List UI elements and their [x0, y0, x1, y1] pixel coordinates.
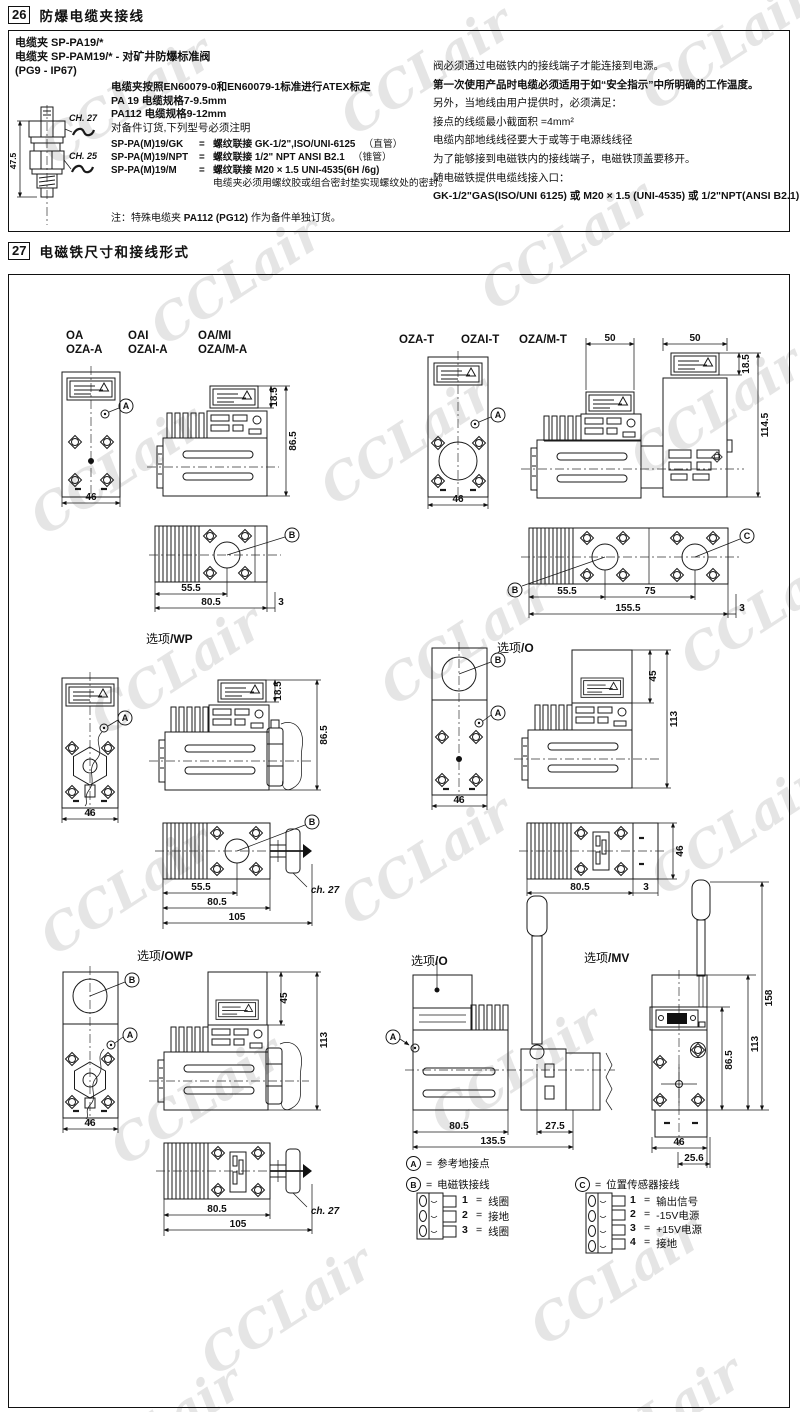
section-27-header: 27 电磁铁尺寸和接线形式	[8, 241, 189, 261]
dim-oa-plate-h: 18.5	[269, 387, 280, 407]
instr-line-6: 为了能够接到电磁铁内的接线端子，电磁铁顶盖要移开。	[433, 150, 799, 169]
coil-connector-icon	[416, 1192, 458, 1242]
instr-line-8: GK-1/2"GAS(ISO/UNI 6125) 或 M20 × 1.5 (UN…	[433, 187, 799, 206]
dim-o1-top: 45	[648, 670, 659, 682]
legend-c-item: 4=接地	[630, 1236, 677, 1251]
dim-ozat-b2: 75	[644, 586, 656, 597]
model-desc: 螺纹联接 GK-1/2",ISO/UNI-6125	[213, 138, 355, 151]
marker-b: B	[406, 1177, 421, 1192]
dim-o1-b3: 46	[675, 845, 686, 857]
dim-wp-plate-h: 18.5	[273, 681, 284, 701]
section-title: 电磁铁尺寸和接线形式	[39, 241, 189, 261]
instr-line-5: 电缆内部地线线径要大于或等于电源线线径	[433, 131, 799, 150]
model-paren: （直管）	[363, 138, 402, 151]
model-code: SP-PA(M)19/GK	[111, 138, 199, 151]
dim-mv-h2: 113	[750, 1035, 761, 1052]
clamp-line-1: 电缆夹 SP-PA19/*	[15, 36, 210, 50]
wrench-size-top: CH. 27	[69, 113, 98, 123]
o2-lever-side-view	[386, 896, 615, 1150]
dim-ozat-width: 46	[452, 494, 464, 505]
dim-o1-b1: 80.5	[570, 882, 590, 893]
model-desc: 螺纹联接 M20 × 1.5 UNI-4535(6H /6g)	[213, 164, 379, 177]
section-26-header: 26 防爆电缆夹接线	[8, 5, 144, 25]
pa19-line: PA 19 电缆规格7-9.5mm	[111, 95, 448, 109]
dim-wp-b3: 105	[229, 912, 246, 923]
seal-note: 电缆夹必须用螺纹胶或组合密封垫实现螺纹处的密封。	[213, 177, 448, 191]
dim-ozat-top2: 50	[689, 333, 701, 344]
dim-o1-height: 113	[669, 710, 680, 727]
wp-front-view	[62, 672, 132, 823]
marker-a: A	[127, 1030, 134, 1040]
wiring-instructions: 阀必须通过电磁铁内的接线端子才能连接到电源。 第一次使用产品时电缆必须适用于如“…	[433, 57, 799, 206]
clamp-line-3: (PG9 - IP67)	[15, 64, 210, 78]
marker-a: A	[390, 1032, 397, 1042]
dim-oa-height: 86.5	[288, 431, 299, 451]
marker-b: B	[289, 530, 296, 540]
dim-ozat-height: 114.5	[760, 412, 771, 437]
legend-b: B = 电磁铁接线	[406, 1177, 490, 1192]
gland-height-dim: 47.5	[8, 152, 18, 169]
dim-owp-wrench: ch. 27	[311, 1206, 340, 1217]
dim-wp-b1: 55.5	[191, 882, 211, 893]
dim-oa-width: 46	[85, 492, 97, 503]
instr-line-7: 随电磁铁提供电缆线接入口：	[433, 169, 799, 188]
dim-ozat-b1: 55.5	[557, 586, 577, 597]
legend-b-item: 3=线圈	[462, 1224, 509, 1239]
oa-front-view	[62, 366, 133, 507]
marker-b: B	[309, 817, 316, 827]
marker-a: A	[122, 713, 129, 723]
dim-owp-top: 45	[279, 992, 290, 1004]
cable-clamp-intro: 电缆夹 SP-PA19/* 电缆夹 SP-PAM19/* - 对矿井防爆标准阀 …	[15, 36, 210, 78]
dim-owp-b2: 105	[230, 1219, 247, 1230]
model-row: SP-PA(M)19/GK = 螺纹联接 GK-1/2",ISO/UNI-612…	[111, 138, 448, 151]
legend-c: C = 位置传感器接线	[575, 1177, 680, 1192]
dim-mv-h3: 158	[764, 989, 775, 1006]
dim-owp-height: 113	[319, 1031, 330, 1048]
instr-line-4: 接点的线缆最小截面积 =4mm²	[433, 113, 799, 132]
mv-front-view	[650, 880, 769, 1168]
sensor-connector-icon	[585, 1192, 627, 1256]
cable-gland-drawing: 47.5 CH. 27 CH. 25	[13, 103, 113, 229]
legend-c-item: 3=+15V电源	[630, 1222, 702, 1237]
wrench-icon	[72, 166, 93, 172]
dim-oa-b1: 55.5	[181, 583, 201, 594]
section-number: 26	[8, 6, 30, 24]
dim-wp-wrench: ch. 27	[311, 885, 340, 896]
order-note-line: 对备件订货,下列型号必须注明	[111, 122, 448, 136]
dim-o2-b1: 80.5	[449, 1121, 469, 1132]
legend-c-item: 2=-15V电源	[630, 1208, 699, 1223]
dim-mv-w1: 46	[673, 1137, 685, 1148]
dim-o1-width: 46	[453, 795, 465, 806]
legend-b-item: 1=线圈	[462, 1194, 509, 1209]
legend-b-title: 电磁铁接线	[437, 1177, 490, 1192]
legend-b-item: 2=接地	[462, 1209, 509, 1224]
ozat-side-view	[521, 338, 761, 498]
dim-mv-h1: 86.5	[724, 1050, 735, 1070]
dim-ozat-top1: 50	[604, 333, 616, 344]
spare-part-note: 注：特殊电缆夹 PA112 (PG12) 作为备件单独订货。	[111, 212, 448, 226]
model-row: SP-PA(M)19/M = 螺纹联接 M20 × 1.5 UNI-4535(6…	[111, 164, 448, 177]
dim-owp-width: 46	[84, 1118, 96, 1129]
ozat-front-view	[428, 351, 505, 509]
dim-o2-b3: 135.5	[480, 1136, 505, 1147]
dim-o1-b2: 3	[643, 882, 649, 893]
dim-wp-height: 86.5	[319, 725, 330, 745]
datasheet-page: CCLair CCLair CCLair CCLair CCLair CCLai…	[0, 0, 800, 1412]
oa-bottom-view	[149, 526, 299, 612]
marker-b: B	[495, 655, 502, 665]
model-code: SP-PA(M)19/M	[111, 164, 199, 177]
dim-ozat-b3: 155.5	[615, 603, 640, 614]
section-number: 27	[8, 242, 30, 260]
marker-a: A	[406, 1156, 421, 1171]
marker-b: B	[512, 585, 519, 595]
dim-wp-width: 46	[84, 808, 96, 819]
pa112-line: PA112 电缆规格9-12mm	[111, 108, 448, 122]
wp-side-view	[149, 680, 321, 790]
o1-front-view	[432, 642, 505, 810]
marker-c: C	[744, 531, 751, 541]
dim-oa-b2: 80.5	[201, 597, 221, 608]
dim-oa-b3: 3	[278, 597, 284, 608]
dim-mv-w2: 25.6	[684, 1153, 704, 1164]
o1-bottom-view	[519, 823, 677, 896]
wrench-icon	[73, 129, 94, 135]
dim-wp-b2: 80.5	[207, 897, 227, 908]
marker-a: A	[495, 708, 502, 718]
marker-a: A	[495, 410, 502, 420]
clamp-spec-block: 电缆夹按照EN60079-0和EN60079-1标准进行ATEX标定 PA 19…	[111, 81, 448, 225]
clamp-line-2: 电缆夹 SP-PAM19/* - 对矿井防爆标准阀	[15, 50, 210, 64]
dim-ozat-b4: 3	[739, 603, 745, 614]
section-title: 防爆电缆夹接线	[39, 5, 144, 25]
atex-line: 电缆夹按照EN60079-0和EN60079-1标准进行ATEX标定	[111, 81, 448, 95]
owp-side-view	[149, 972, 321, 1110]
legend-c-title: 位置传感器接线	[606, 1177, 680, 1192]
dim-owp-b1: 80.5	[207, 1204, 227, 1215]
model-code: SP-PA(M)19/NPT	[111, 151, 199, 164]
marker-a: A	[123, 401, 130, 411]
marker-c: C	[575, 1177, 590, 1192]
marker-b: B	[129, 975, 136, 985]
instr-line-1: 阀必须通过电磁铁内的接线端子才能连接到电源。	[433, 57, 799, 76]
section-26-box: 电缆夹 SP-PA19/* 电缆夹 SP-PAM19/* - 对矿井防爆标准阀 …	[8, 30, 790, 232]
dim-o2-b2: 27.5	[545, 1121, 565, 1132]
owp-front-view	[63, 966, 139, 1133]
model-desc: 螺纹联接 1/2" NPT ANSI B2.1	[213, 151, 345, 164]
instr-line-3: 另外，当地线由用户提供时，必须满足：	[433, 94, 799, 113]
model-paren: （锥管）	[353, 151, 392, 164]
legend-a: A = 参考地接点	[406, 1156, 490, 1171]
legend-a-text: 参考地接点	[437, 1156, 490, 1171]
model-row: SP-PA(M)19/NPT = 螺纹联接 1/2" NPT ANSI B2.1…	[111, 151, 448, 164]
instr-line-2: 第一次使用产品时电缆必须适用于如“安全指示”中所明确的工作温度。	[433, 76, 799, 95]
legend-c-item: 1=输出信号	[630, 1194, 698, 1209]
wrench-size-bottom: CH. 25	[69, 151, 98, 161]
dim-ozat-plate-h: 18.5	[741, 354, 752, 374]
